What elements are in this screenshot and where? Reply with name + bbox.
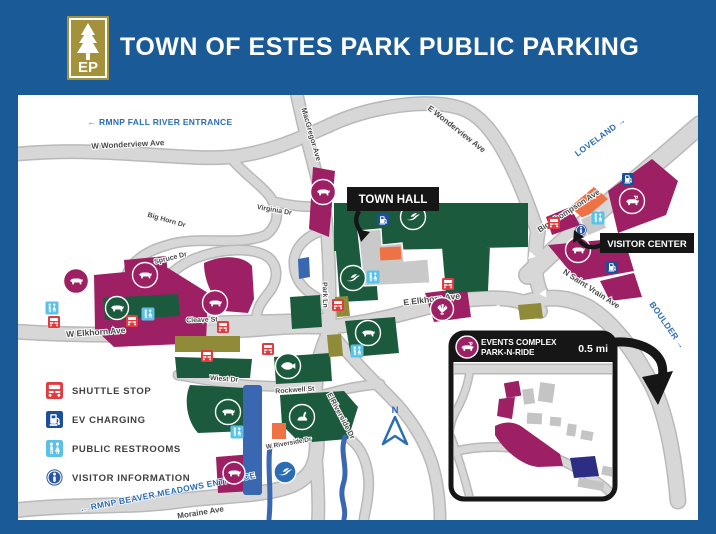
parking-lot-marker-black-bear	[216, 400, 241, 425]
lot-cleave	[175, 336, 240, 352]
restroom-icon	[46, 302, 59, 315]
lot-wiest	[175, 357, 252, 433]
page-title: TOWN OF ESTES PARK PUBLIC PARKING	[120, 0, 639, 95]
parking-lot-marker-wild-turkey	[431, 298, 454, 321]
shuttle-icon	[548, 217, 560, 229]
estes-park-logo: EP	[66, 15, 110, 81]
restroom-icon	[231, 426, 244, 439]
lot-east-olive	[518, 303, 543, 320]
lot-park-ln	[290, 295, 322, 329]
shuttle-icon	[48, 316, 60, 328]
ev-charging-icon	[46, 411, 63, 428]
street-label: Park Ln	[321, 282, 329, 308]
shuttle-icon	[442, 278, 454, 290]
shuttle-icon	[217, 321, 229, 333]
legend-shuttle-label: SHUTTLE STOP	[72, 386, 151, 397]
legend-restrooms-label: PUBLIC RESTROOMS	[72, 444, 181, 455]
ev-icon	[606, 261, 618, 273]
shuttle-stop-icon	[46, 382, 63, 399]
parking-lot-marker-marten	[133, 263, 158, 288]
inset-distance: 0.5 mi	[578, 343, 608, 355]
restroom-icon	[367, 271, 380, 284]
restroom-icon	[142, 308, 155, 321]
ev-icon	[622, 173, 634, 185]
direction-sign: BOULDER →	[647, 300, 687, 351]
parking-lot-marker-mountain-lion	[64, 269, 89, 294]
shuttle-icon	[332, 299, 344, 311]
street-label: Cleave St	[186, 316, 218, 324]
parking-lot-marker-bobcat	[203, 291, 228, 316]
logo-text: EP	[78, 59, 98, 76]
legend-info-label: VISITOR INFORMATION	[72, 473, 190, 484]
north-label: N	[392, 405, 399, 416]
direction-sign: LOVELAND →	[573, 115, 628, 159]
inset-title-line2: PARK-N-RIDE	[481, 348, 535, 357]
parking-lot-marker-coyote	[223, 462, 245, 484]
restroom-icon	[592, 212, 605, 225]
parking-lot-marker-dove	[274, 461, 296, 483]
public-restrooms-icon	[46, 440, 63, 457]
restroom-icon	[351, 345, 364, 358]
parking-map: W Wonderview AveE Wonderview AveVirginia…	[18, 95, 698, 520]
parking-lot-marker-elk	[620, 189, 645, 214]
parking-lot-marker-marmot	[106, 297, 129, 320]
legend: SHUTTLE STOP EV CHARGING PUBLIC RESTROOM…	[46, 382, 190, 486]
parking-lot-marker-bighorn-sheep	[311, 180, 336, 205]
lot-riverside-olive	[327, 334, 343, 357]
parking-lot-marker-trout	[276, 354, 301, 379]
visitor-information-icon	[46, 469, 62, 485]
parking-lot-marker-otter	[356, 321, 381, 346]
header: EP TOWN OF ESTES PARK PUBLIC PARKING	[0, 0, 716, 95]
legend-ev-label: EV CHARGING	[72, 415, 146, 426]
direction-sign: ← RMNP FALL RIVER ENTRANCE	[88, 117, 233, 127]
town-hall-orange	[380, 246, 402, 260]
transit-segment	[298, 257, 310, 279]
shuttle-icon	[201, 350, 213, 362]
street-label: Big Horn Dr	[147, 212, 187, 230]
map-canvas: W Wonderview AveE Wonderview AveVirginia…	[18, 95, 698, 520]
riverside-orange	[272, 423, 286, 439]
parking-lot-marker-rabbit	[290, 405, 315, 430]
ev-icon	[377, 214, 389, 226]
inset-title-line1: EVENTS COMPLEX	[481, 338, 557, 347]
community-center-building	[570, 456, 599, 478]
parking-lot-marker-dove	[341, 266, 366, 291]
visitor-center-label: VISITOR CENTER	[607, 239, 687, 250]
shuttle-icon	[126, 315, 138, 327]
page: { "header": { "title": "TOWN OF ESTES PA…	[0, 0, 716, 534]
shuttle-icon	[262, 343, 274, 355]
town-hall-label: TOWN HALL	[359, 194, 428, 206]
